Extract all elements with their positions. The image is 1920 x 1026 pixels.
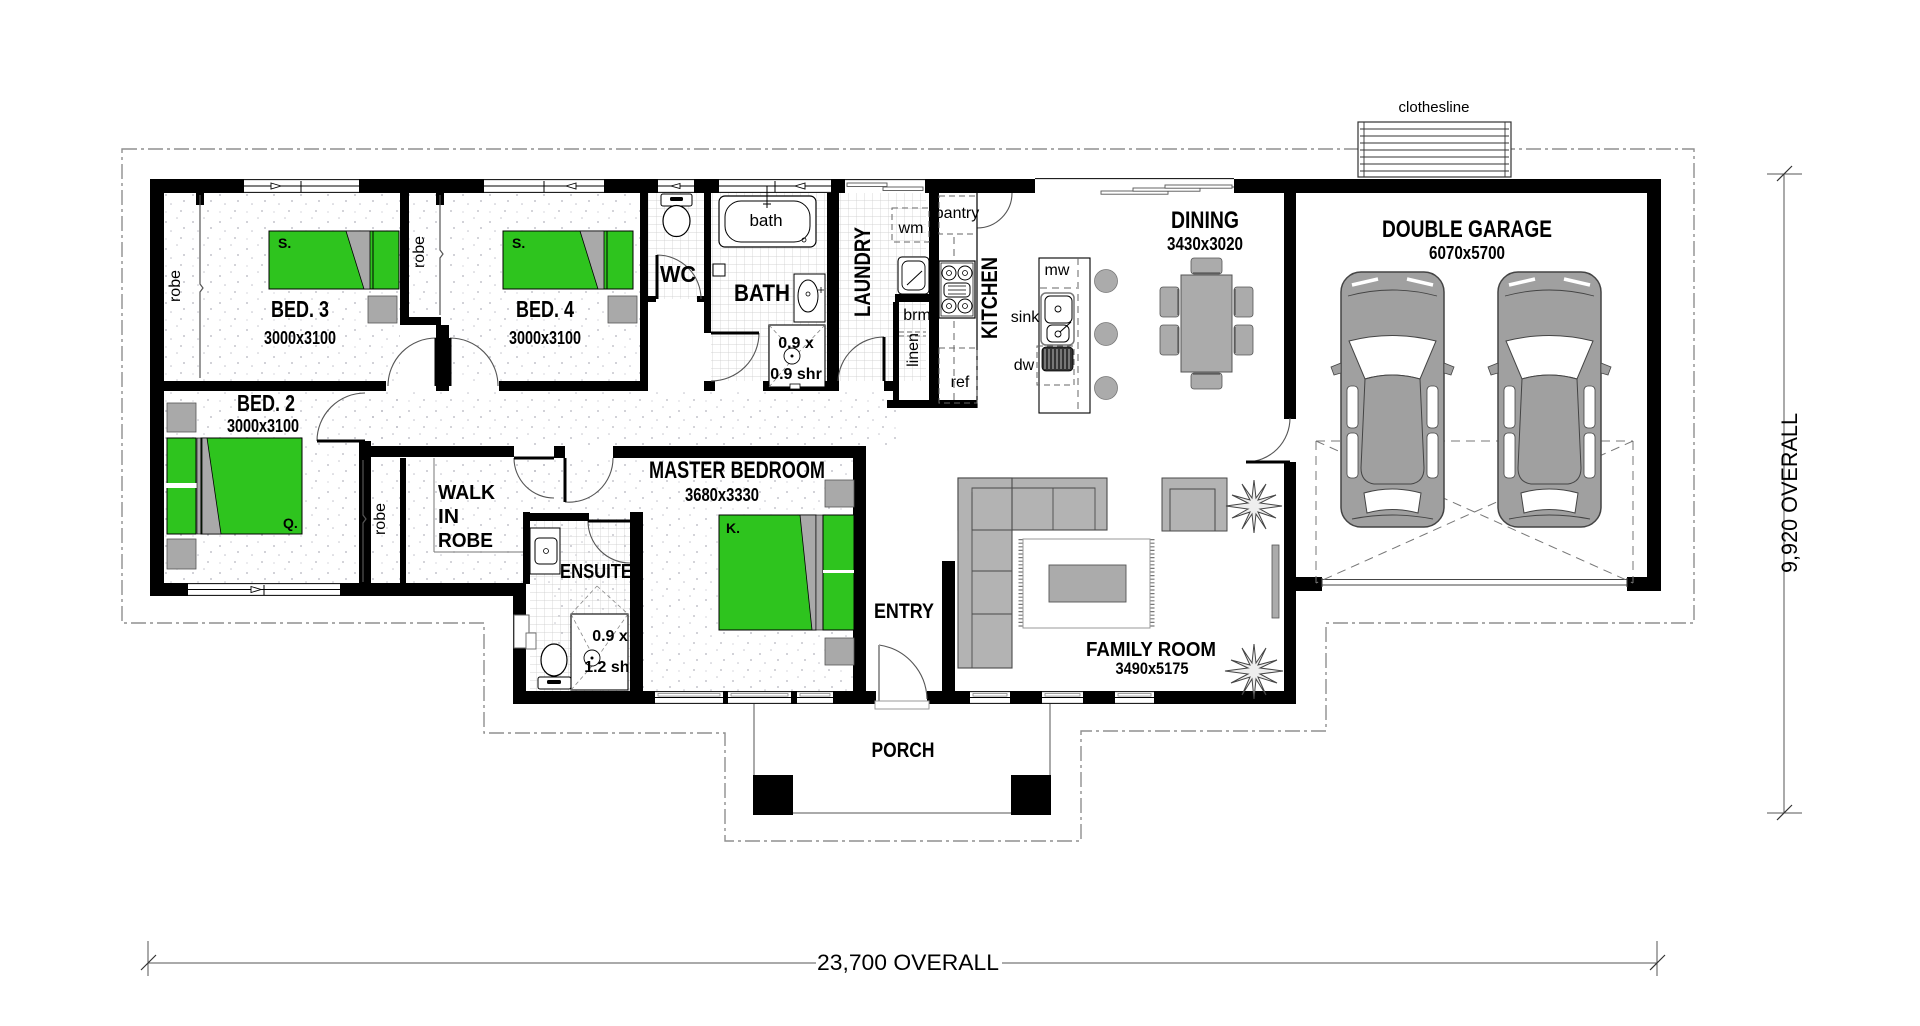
- svg-text:LAUNDRY: LAUNDRY: [850, 227, 875, 317]
- svg-text:mw: mw: [1045, 262, 1070, 279]
- svg-text:0.9 x: 0.9 x: [592, 628, 628, 645]
- svg-text:robe: robe: [372, 503, 389, 535]
- svg-text:FAMILY ROOM: FAMILY ROOM: [1086, 639, 1216, 661]
- svg-text:robe: robe: [167, 270, 184, 302]
- svg-text:sink: sink: [1011, 309, 1040, 326]
- svg-text:bath: bath: [749, 211, 782, 230]
- svg-text:ENTRY: ENTRY: [874, 600, 934, 623]
- svg-text:WALK: WALK: [438, 482, 496, 504]
- svg-text:ENSUITE: ENSUITE: [560, 561, 632, 583]
- svg-text:wm: wm: [898, 220, 924, 237]
- svg-text:3430x3020: 3430x3020: [1167, 234, 1243, 254]
- svg-text:3000x3100: 3000x3100: [264, 328, 336, 348]
- svg-text:robe: robe: [411, 236, 428, 268]
- svg-text:3490x5175: 3490x5175: [1116, 659, 1189, 678]
- svg-text:3000x3100: 3000x3100: [509, 328, 581, 348]
- svg-text:DINING: DINING: [1171, 207, 1239, 234]
- svg-text:KITCHEN: KITCHEN: [977, 257, 1002, 339]
- svg-text:Q.: Q.: [283, 515, 298, 531]
- svg-text:DOUBLE GARAGE: DOUBLE GARAGE: [1382, 216, 1552, 243]
- svg-text:ref: ref: [951, 374, 970, 391]
- svg-text:9,920 OVERALL: 9,920 OVERALL: [1777, 413, 1802, 573]
- svg-text:clothesline: clothesline: [1399, 99, 1470, 116]
- svg-text:dw: dw: [1014, 357, 1035, 374]
- svg-text:K.: K.: [726, 520, 740, 536]
- svg-text:linen: linen: [905, 333, 922, 367]
- svg-text:MASTER BEDROOM: MASTER BEDROOM: [649, 457, 825, 484]
- svg-text:WC: WC: [660, 261, 696, 287]
- svg-text:1.2 shr: 1.2 shr: [584, 659, 636, 676]
- svg-text:ROBE: ROBE: [438, 530, 493, 552]
- svg-text:BED. 4: BED. 4: [516, 296, 574, 322]
- svg-text:S.: S.: [512, 235, 525, 251]
- svg-text:6070x5700: 6070x5700: [1429, 243, 1505, 263]
- svg-text:BED. 3: BED. 3: [271, 296, 329, 322]
- svg-text:IN: IN: [438, 506, 459, 528]
- svg-text:0.9 shr: 0.9 shr: [770, 366, 822, 383]
- svg-text:S.: S.: [278, 235, 291, 251]
- svg-text:BED. 2: BED. 2: [237, 390, 295, 416]
- svg-text:3680x3330: 3680x3330: [685, 485, 759, 505]
- svg-text:pantry: pantry: [935, 205, 979, 222]
- svg-text:BATH: BATH: [734, 280, 790, 307]
- svg-text:3000x3100: 3000x3100: [227, 416, 299, 436]
- svg-text:0.9 x: 0.9 x: [778, 335, 814, 352]
- svg-text:brm: brm: [903, 307, 931, 324]
- svg-text:23,700 OVERALL: 23,700 OVERALL: [817, 950, 999, 975]
- svg-text:PORCH: PORCH: [872, 739, 935, 762]
